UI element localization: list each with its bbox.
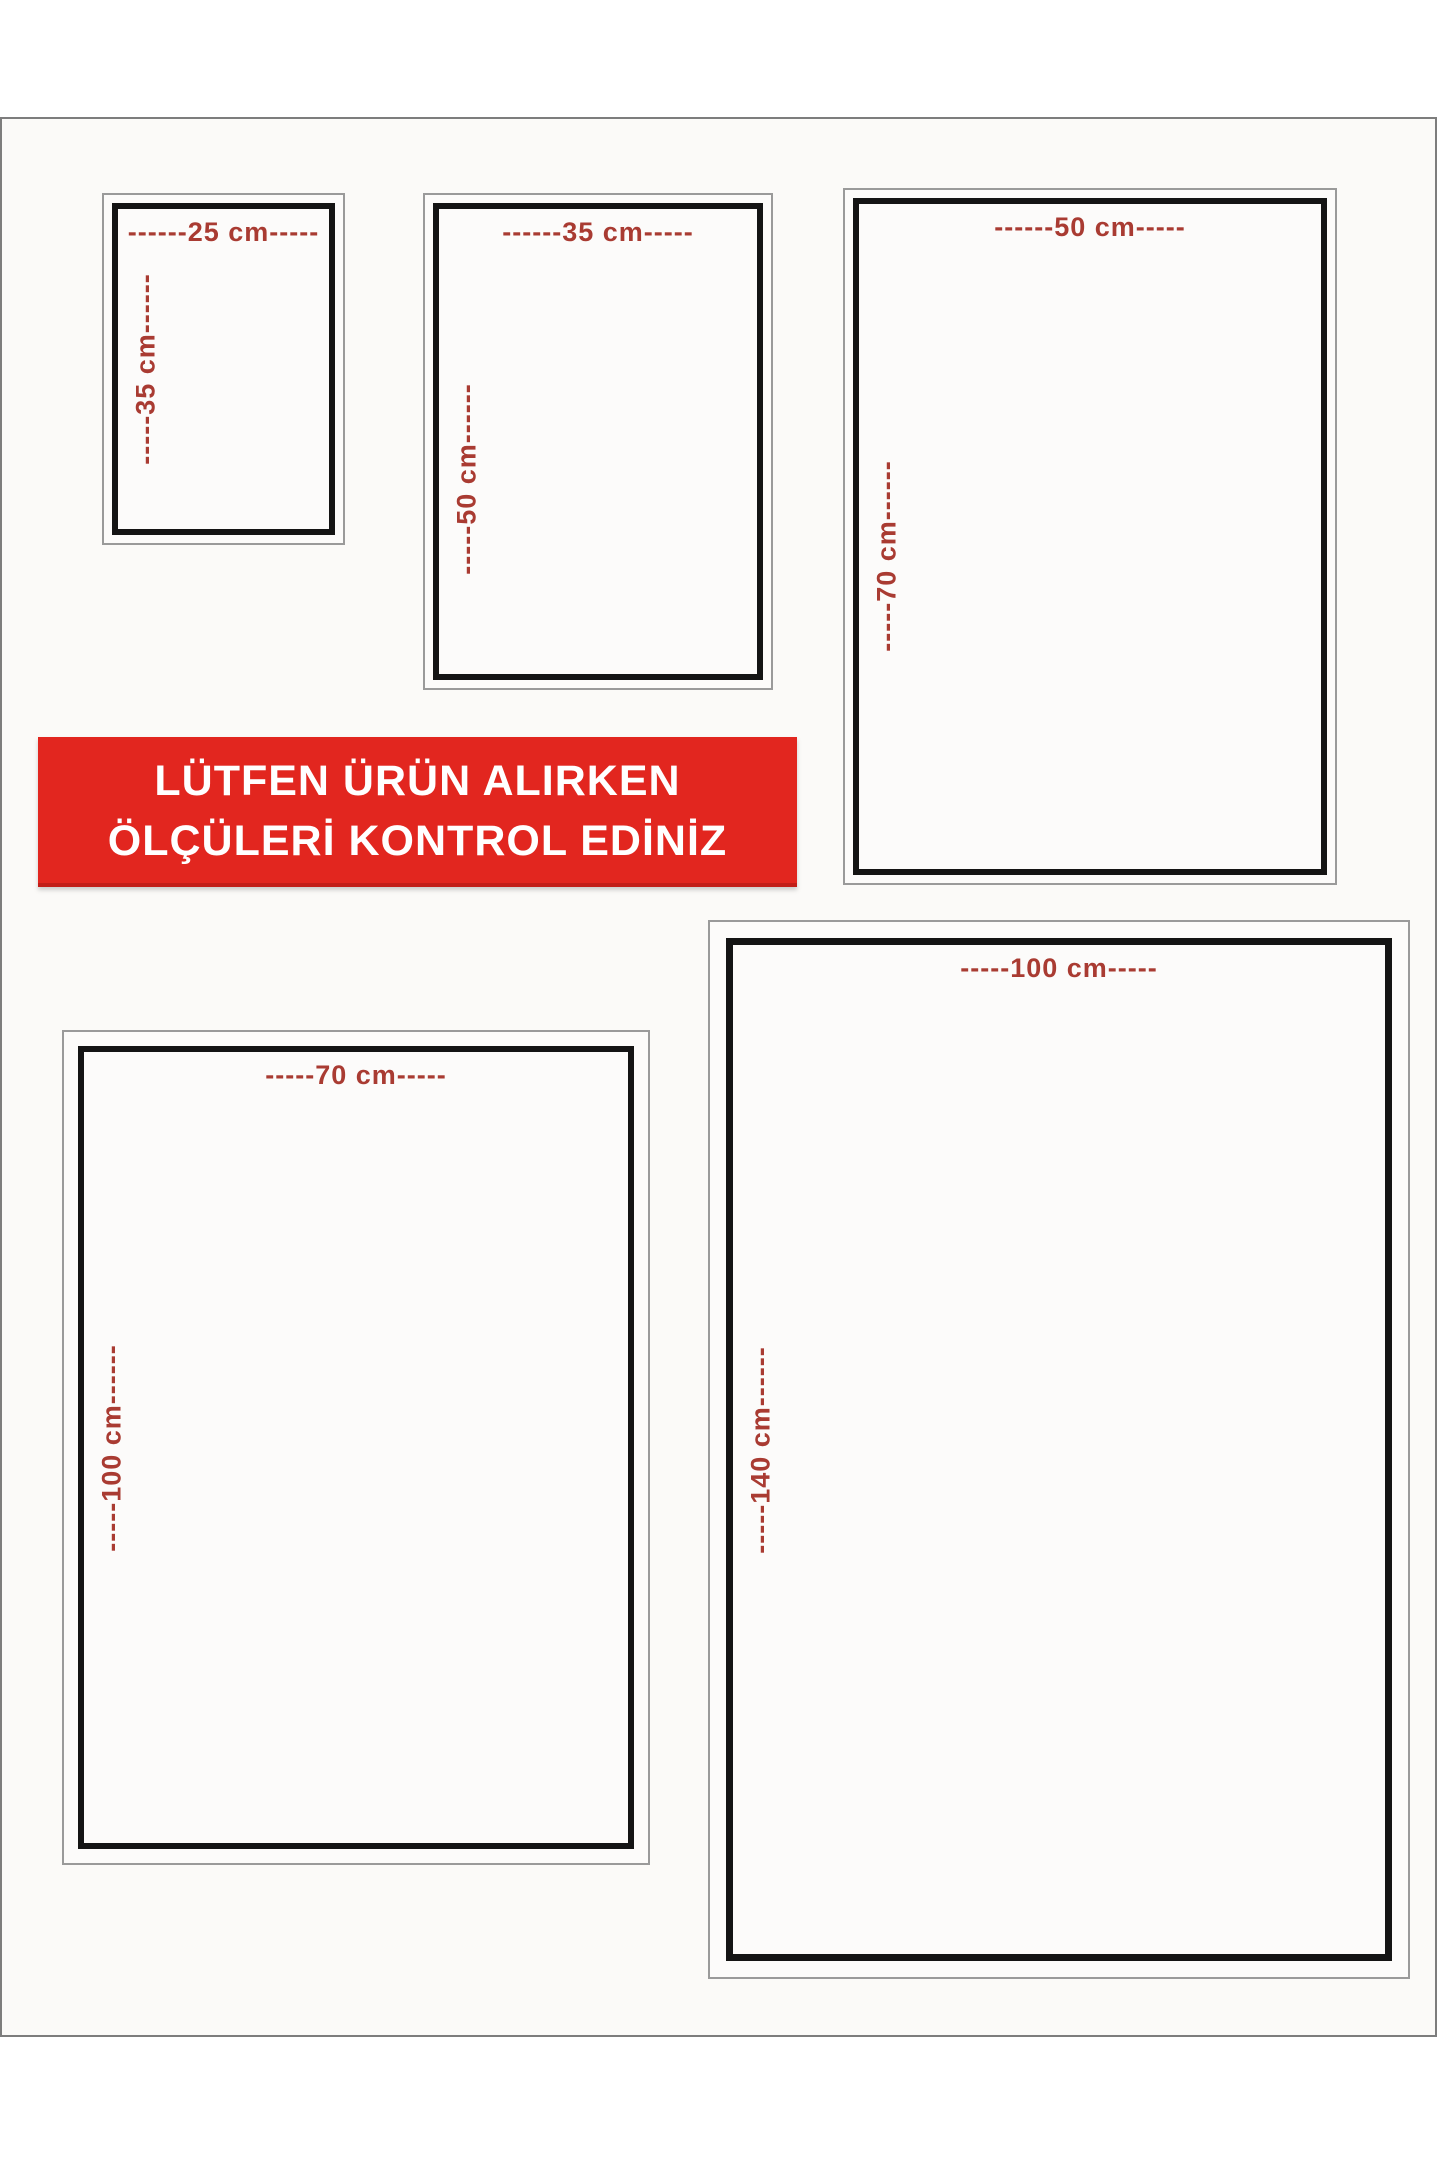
height-dimension-label: -----100 cm------ bbox=[97, 1344, 128, 1551]
height-dimension-label: -----50 cm------ bbox=[452, 383, 483, 574]
notice-banner: LÜTFEN ÜRÜN ALIRKEN ÖLÇÜLERİ KONTROL EDİ… bbox=[38, 737, 797, 887]
size-box-25x35-frame: ------25 cm----- -----35 cm------ bbox=[112, 203, 335, 535]
notice-banner-line-1: LÜTFEN ÜRÜN ALIRKEN bbox=[38, 751, 797, 811]
size-box-70x100: -----70 cm----- -----100 cm------ bbox=[62, 1030, 650, 1865]
width-dimension-label: ------50 cm----- bbox=[859, 212, 1321, 243]
height-dimension-label: -----140 cm------ bbox=[746, 1346, 777, 1553]
size-box-35x50-frame: ------35 cm----- -----50 cm------ bbox=[433, 203, 763, 680]
size-box-70x100-frame: -----70 cm----- -----100 cm------ bbox=[78, 1046, 634, 1849]
size-box-50x70: ------50 cm----- -----70 cm------ bbox=[843, 188, 1337, 885]
width-dimension-label: ------35 cm----- bbox=[439, 217, 757, 248]
size-box-35x50: ------35 cm----- -----50 cm------ bbox=[423, 193, 773, 690]
width-dimension-label: ------25 cm----- bbox=[118, 217, 329, 248]
size-box-100x140: -----100 cm----- -----140 cm------ bbox=[708, 920, 1410, 1979]
size-box-50x70-frame: ------50 cm----- -----70 cm------ bbox=[853, 198, 1327, 875]
product-size-guide: ------25 cm----- -----35 cm------ ------… bbox=[0, 0, 1440, 2160]
width-dimension-label: -----100 cm----- bbox=[733, 953, 1385, 984]
width-dimension-label: -----70 cm----- bbox=[84, 1060, 628, 1091]
size-box-100x140-frame: -----100 cm----- -----140 cm------ bbox=[726, 938, 1392, 1961]
notice-banner-line-2: ÖLÇÜLERİ KONTROL EDİNİZ bbox=[38, 811, 797, 871]
height-dimension-label: -----35 cm------ bbox=[131, 273, 162, 464]
size-box-25x35: ------25 cm----- -----35 cm------ bbox=[102, 193, 345, 545]
height-dimension-label: -----70 cm------ bbox=[872, 461, 903, 652]
